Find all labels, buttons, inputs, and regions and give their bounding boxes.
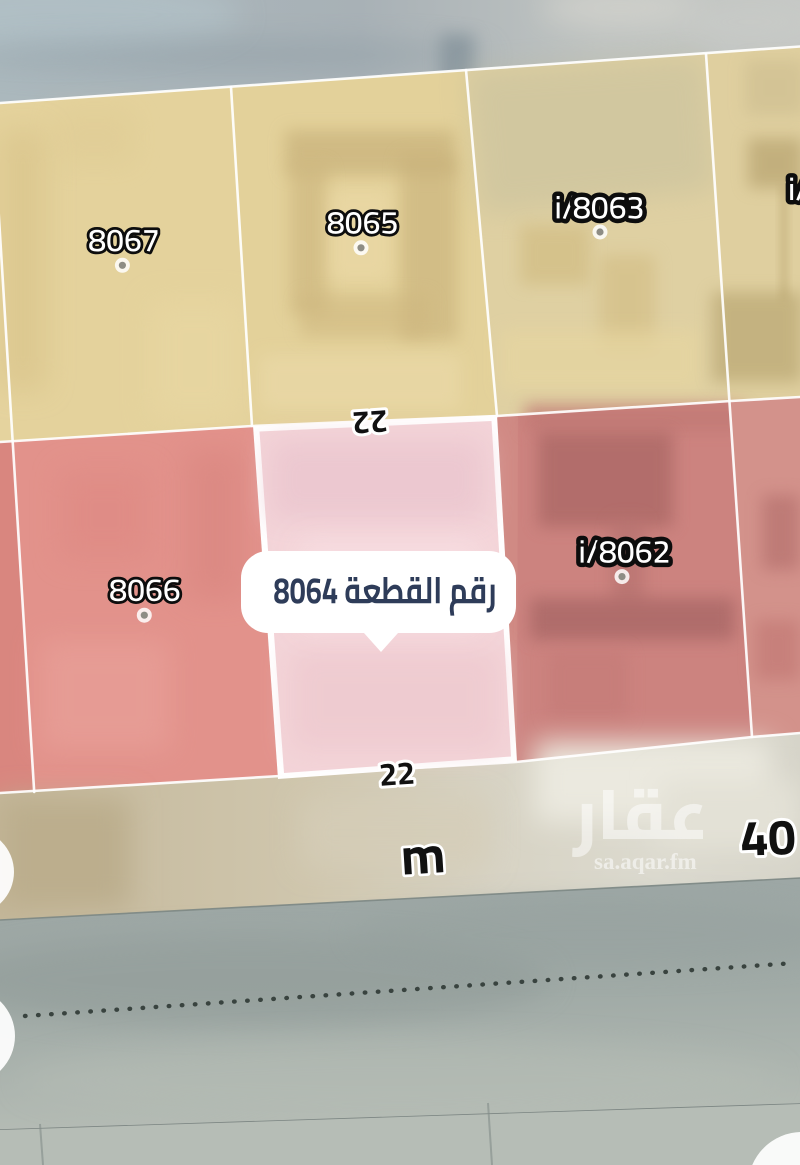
svg-text:sa.aqar.fm: sa.aqar.fm bbox=[594, 849, 697, 874]
